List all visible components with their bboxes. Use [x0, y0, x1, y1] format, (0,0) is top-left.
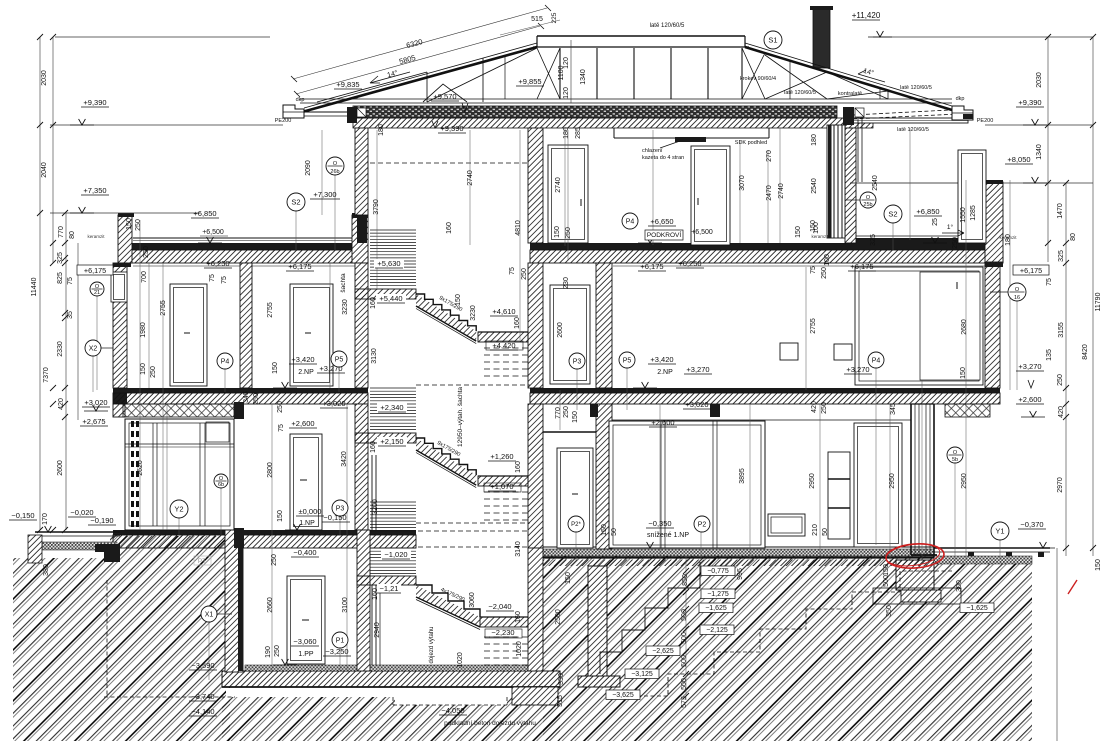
svg-text:850: 850	[682, 574, 689, 586]
svg-text:250: 250	[274, 645, 281, 657]
svg-text:25: 25	[932, 218, 939, 226]
svg-text:P4: P4	[221, 359, 230, 366]
svg-text:160: 160	[370, 297, 377, 309]
svg-text:180: 180	[1005, 234, 1012, 246]
svg-text:75: 75	[221, 276, 228, 284]
svg-text:250: 250	[150, 366, 157, 378]
svg-text:+7,350: +7,350	[83, 186, 106, 195]
svg-text:500: 500	[681, 609, 688, 621]
svg-text:2600: 2600	[57, 460, 64, 476]
svg-text:S2: S2	[888, 210, 897, 219]
svg-text:šachta: šachta	[340, 273, 347, 293]
svg-text:16: 16	[1014, 295, 1020, 301]
svg-text:2.NP: 2.NP	[298, 369, 314, 376]
svg-text:+3,270: +3,270	[686, 365, 709, 374]
svg-text:2330: 2330	[57, 341, 64, 357]
svg-text:190: 190	[265, 646, 272, 658]
svg-text:+6,250: +6,250	[206, 259, 229, 268]
svg-text:kazeta do 4 stran: kazeta do 4 stran	[642, 155, 684, 161]
svg-text:−3,590: −3,590	[191, 661, 214, 670]
svg-text:+3,420: +3,420	[650, 355, 673, 364]
svg-text:2950: 2950	[961, 473, 968, 489]
svg-text:+6,175: +6,175	[84, 266, 106, 275]
svg-text:500: 500	[681, 632, 688, 644]
svg-text:4810: 4810	[515, 220, 522, 236]
svg-text:575: 575	[681, 696, 688, 708]
svg-text:+4,610: +4,610	[492, 307, 515, 316]
svg-text:3070: 3070	[739, 175, 746, 191]
svg-text:325: 325	[870, 234, 877, 246]
svg-text:−3,060: −3,060	[293, 637, 316, 646]
svg-text:26b: 26b	[330, 169, 339, 175]
svg-text:+3,270: +3,270	[846, 365, 869, 374]
svg-text:3230: 3230	[470, 305, 477, 321]
svg-text:2660: 2660	[267, 597, 274, 613]
svg-text:150: 150	[140, 363, 147, 375]
svg-text:150: 150	[810, 220, 817, 232]
svg-text:+9,390: +9,390	[440, 124, 463, 133]
svg-text:2755: 2755	[267, 302, 274, 318]
svg-text:+3,020: +3,020	[322, 399, 345, 408]
svg-text:170: 170	[42, 513, 49, 525]
svg-text:+2,340: +2,340	[380, 403, 403, 412]
svg-text:−1,275: −1,275	[707, 591, 729, 598]
svg-text:+2,150: +2,150	[380, 437, 403, 446]
svg-text:SDK podhled: SDK podhled	[735, 140, 767, 146]
svg-text:350: 350	[886, 605, 893, 617]
svg-text:80: 80	[69, 231, 76, 239]
svg-text:75: 75	[810, 266, 817, 274]
svg-text:1340: 1340	[1036, 144, 1043, 160]
svg-text:3130: 3130	[371, 348, 378, 364]
svg-text:latě 120/60/5: latě 120/60/5	[897, 127, 929, 133]
svg-text:−2,040: −2,040	[488, 602, 511, 611]
svg-text:250: 250	[277, 401, 284, 413]
svg-text:P3: P3	[336, 506, 345, 513]
svg-text:P1: P1	[336, 638, 345, 645]
svg-text:chlazení: chlazení	[642, 148, 663, 154]
svg-text:2030: 2030	[1036, 72, 1043, 88]
svg-text:1285: 1285	[970, 205, 977, 221]
svg-text:1470: 1470	[1057, 203, 1064, 219]
svg-text:+6,500: +6,500	[691, 229, 713, 236]
svg-text:6b: 6b	[218, 482, 224, 488]
svg-text:250: 250	[135, 219, 142, 231]
svg-text:50: 50	[822, 528, 829, 536]
svg-text:250: 250	[1057, 374, 1064, 386]
svg-text:5b: 5b	[952, 457, 958, 463]
svg-text:1020: 1020	[516, 641, 523, 657]
svg-text:P4: P4	[626, 219, 635, 226]
svg-text:2470: 2470	[766, 185, 773, 201]
svg-text:+9,390: +9,390	[1018, 98, 1041, 107]
svg-text:+11,420: +11,420	[852, 11, 881, 20]
svg-text:500: 500	[681, 678, 688, 690]
svg-text:3420: 3420	[341, 451, 348, 467]
svg-text:−2,625: −2,625	[652, 648, 674, 655]
svg-text:PE200: PE200	[275, 118, 292, 124]
svg-text:75: 75	[278, 424, 285, 432]
svg-text:2.NP: 2.NP	[657, 369, 673, 376]
svg-text:150: 150	[572, 411, 579, 423]
svg-text:2090: 2090	[305, 160, 312, 176]
svg-text:−2,230: −2,230	[491, 628, 514, 637]
svg-text:3790: 3790	[373, 199, 380, 215]
svg-text:dkp: dkp	[956, 96, 965, 102]
svg-text:2740: 2740	[778, 183, 785, 199]
svg-text:270: 270	[766, 150, 773, 162]
svg-text:2755: 2755	[160, 300, 167, 316]
svg-text:2500: 2500	[555, 609, 562, 625]
svg-text:1.NP: 1.NP	[299, 520, 315, 527]
svg-text:150: 150	[601, 524, 608, 536]
svg-text:150: 150	[795, 226, 802, 238]
svg-text:krokev 90/60/4: krokev 90/60/4	[740, 76, 776, 82]
svg-text:325: 325	[57, 252, 64, 264]
svg-text:−0,370: −0,370	[1020, 520, 1043, 529]
svg-text:825: 825	[57, 272, 64, 284]
svg-text:1020: 1020	[457, 652, 464, 668]
svg-text:2540: 2540	[872, 175, 879, 191]
svg-text:PT: PT	[198, 558, 206, 565]
svg-text:1550: 1550	[960, 207, 967, 223]
svg-text:2950: 2950	[889, 473, 896, 489]
svg-text:25b: 25b	[863, 202, 872, 208]
svg-text:−0,400: −0,400	[293, 548, 316, 557]
svg-text:11790: 11790	[1095, 292, 1102, 311]
svg-text:250: 250	[952, 237, 959, 249]
svg-text:−3,125: −3,125	[631, 671, 653, 678]
svg-text:50: 50	[611, 528, 618, 536]
svg-text:500: 500	[681, 655, 688, 667]
svg-text:+9,570: +9,570	[433, 92, 456, 101]
svg-text:7370: 7370	[43, 367, 50, 383]
svg-text:−0,350: −0,350	[648, 519, 671, 528]
svg-text:X2: X2	[89, 346, 98, 353]
svg-text:S2: S2	[291, 198, 300, 207]
svg-text:2030: 2030	[41, 70, 48, 86]
svg-text:+5,440: +5,440	[379, 294, 402, 303]
svg-text:+6,175: +6,175	[640, 262, 663, 271]
svg-text:250: 250	[563, 406, 570, 418]
svg-text:135: 135	[1046, 349, 1053, 361]
svg-text:150: 150	[565, 572, 572, 584]
svg-text:250: 250	[271, 554, 278, 566]
svg-text:250: 250	[821, 402, 828, 414]
svg-text:150: 150	[1095, 559, 1102, 571]
svg-text:+2,675: +2,675	[82, 417, 105, 426]
svg-text:420: 420	[1058, 406, 1065, 418]
svg-text:345: 345	[243, 391, 250, 403]
svg-text:dojezd výtahu: dojezd výtahu	[429, 626, 435, 663]
svg-text:Y2: Y2	[174, 505, 183, 514]
svg-text:P2: P2	[698, 522, 707, 529]
svg-text:2800: 2800	[267, 462, 274, 478]
svg-text:+3,020: +3,020	[685, 400, 708, 409]
svg-text:75: 75	[1046, 278, 1053, 286]
svg-text:325: 325	[1058, 250, 1065, 262]
svg-text:515: 515	[531, 16, 543, 23]
svg-text:770: 770	[58, 226, 65, 238]
svg-text:+9,835: +9,835	[336, 80, 359, 89]
svg-text:3230: 3230	[342, 299, 349, 315]
svg-text:+1,070: +1,070	[490, 482, 513, 491]
svg-text:+6,175: +6,175	[1020, 266, 1042, 275]
svg-text:770: 770	[555, 407, 562, 419]
svg-text:kontralatě: kontralatě	[838, 91, 862, 97]
svg-text:160: 160	[372, 588, 379, 600]
svg-text:380: 380	[43, 564, 50, 576]
svg-text:X1: X1	[205, 612, 214, 619]
svg-text:+6,175: +6,175	[850, 262, 873, 271]
svg-text:−2,125: −2,125	[706, 627, 728, 634]
svg-text:+9,390: +9,390	[83, 98, 106, 107]
svg-text:latě 120/60/5: latě 120/60/5	[784, 90, 816, 96]
svg-text:+5,630: +5,630	[377, 259, 400, 268]
svg-text:+3,020: +3,020	[84, 398, 107, 407]
svg-text:160: 160	[514, 317, 521, 329]
svg-text:P5: P5	[623, 358, 632, 365]
svg-text:+3,270: +3,270	[1018, 362, 1041, 371]
svg-text:Y1: Y1	[995, 527, 1004, 536]
svg-text:345: 345	[890, 403, 897, 415]
svg-text:+2,600: +2,600	[1018, 395, 1041, 404]
svg-text:PE200: PE200	[977, 118, 994, 124]
svg-text:+6,175: +6,175	[288, 262, 311, 271]
svg-text:−0,150: −0,150	[11, 511, 34, 520]
svg-text:latě 120/60/5: latě 120/60/5	[650, 23, 685, 29]
svg-text:180: 180	[811, 134, 818, 146]
svg-text:snížené 1.NP: snížené 1.NP	[647, 532, 689, 539]
svg-text:+6,650: +6,650	[650, 217, 673, 226]
svg-text:+6,850: +6,850	[193, 209, 216, 218]
svg-text:160: 160	[515, 461, 522, 473]
svg-text:3200: 3200	[372, 499, 379, 515]
svg-text:−3,625: −3,625	[612, 692, 634, 699]
svg-text:3140: 3140	[515, 541, 522, 557]
svg-text:2540: 2540	[811, 178, 818, 194]
svg-text:700: 700	[141, 271, 148, 283]
svg-text:+1,260: +1,260	[490, 452, 513, 461]
svg-text:35: 35	[67, 311, 74, 319]
svg-text:PODKROVÍ: PODKROVÍ	[647, 230, 682, 239]
svg-text:+4,420: +4,420	[492, 341, 515, 350]
svg-text:2740: 2740	[467, 170, 474, 186]
svg-text:300: 300	[956, 580, 963, 592]
svg-text:21: 21	[94, 290, 100, 296]
svg-text:2970: 2970	[1057, 477, 1064, 493]
svg-text:420: 420	[811, 401, 818, 413]
svg-text:+3,420: +3,420	[291, 355, 314, 364]
svg-text:80: 80	[1070, 233, 1077, 241]
svg-text:P2*: P2*	[571, 522, 581, 528]
svg-text:75: 75	[509, 267, 516, 275]
svg-text:+9,855: +9,855	[518, 77, 541, 86]
svg-text:75: 75	[67, 277, 74, 285]
svg-text:150: 150	[554, 226, 561, 238]
svg-text:100: 100	[824, 254, 831, 266]
svg-text:1980: 1980	[140, 322, 147, 338]
svg-text:160: 160	[515, 611, 522, 623]
svg-text:−0,190: −0,190	[90, 516, 113, 525]
svg-text:podkladní beton dojezdu výtahu: podkladní beton dojezdu výtahu	[444, 720, 536, 727]
svg-text:150: 150	[272, 362, 279, 374]
svg-text:2040: 2040	[41, 162, 48, 178]
svg-text:+6,250: +6,250	[678, 259, 701, 268]
svg-text:250: 250	[253, 393, 260, 405]
svg-text:3060: 3060	[469, 592, 476, 608]
svg-text:230: 230	[563, 277, 570, 289]
svg-text:+7,300: +7,300	[313, 190, 336, 199]
svg-text:P5: P5	[335, 357, 344, 364]
svg-text:2740: 2740	[555, 177, 562, 193]
svg-text:350: 350	[558, 673, 565, 685]
svg-text:180: 180	[563, 127, 570, 139]
svg-text:2950: 2950	[809, 473, 816, 489]
svg-text:8420: 8420	[1082, 344, 1089, 360]
svg-text:−1,625: −1,625	[705, 605, 727, 612]
svg-text:250: 250	[143, 246, 150, 258]
svg-text:dkp: dkp	[296, 97, 305, 103]
svg-text:−1,625: −1,625	[966, 605, 988, 612]
svg-text:2755: 2755	[810, 318, 817, 334]
svg-text:12950–výtah. šachta: 12950–výtah. šachta	[457, 387, 464, 447]
svg-text:1°: 1°	[947, 223, 954, 231]
svg-text:3895: 3895	[739, 468, 746, 484]
svg-text:1.PP: 1.PP	[298, 651, 314, 658]
svg-text:160: 160	[370, 441, 377, 453]
svg-text:+6,500: +6,500	[202, 229, 224, 236]
svg-text:−3,740: −3,740	[191, 692, 214, 701]
svg-text:11440: 11440	[31, 277, 38, 296]
svg-text:1340: 1340	[580, 69, 587, 85]
svg-text:latě 120/60/5: latě 120/60/5	[900, 85, 932, 91]
svg-text:3100: 3100	[342, 597, 349, 613]
svg-text:−1,020: −1,020	[384, 550, 407, 559]
svg-text:2680: 2680	[961, 319, 968, 335]
svg-text:250: 250	[521, 268, 528, 280]
svg-text:3155: 3155	[1058, 322, 1065, 338]
svg-text:1100: 1100	[558, 65, 565, 80]
svg-text:keramzit: keramzit	[87, 234, 105, 239]
svg-text:−4,050: −4,050	[441, 706, 464, 715]
svg-text:150: 150	[126, 218, 133, 230]
svg-text:160: 160	[446, 222, 453, 234]
svg-text:−0,775: −0,775	[707, 568, 729, 575]
svg-text:420: 420	[58, 398, 65, 410]
svg-text:−3,250: −3,250	[325, 647, 348, 656]
svg-text:250: 250	[565, 227, 572, 239]
svg-text:150: 150	[960, 367, 967, 379]
svg-text:2940: 2940	[374, 622, 381, 638]
svg-text:−4,140: −4,140	[191, 707, 214, 716]
svg-text:75: 75	[209, 274, 216, 282]
svg-text:+6,850: +6,850	[916, 207, 939, 216]
svg-text:+2,600: +2,600	[291, 419, 314, 428]
svg-text:P3: P3	[573, 359, 582, 366]
svg-text:2600: 2600	[557, 322, 564, 338]
svg-text:250: 250	[821, 267, 828, 279]
svg-text:120: 120	[563, 87, 570, 99]
svg-text:210: 210	[812, 524, 819, 536]
svg-text:S1: S1	[768, 36, 777, 45]
svg-text:±0,000: ±0,000	[299, 507, 322, 516]
svg-text:keramzit: keramzit	[811, 234, 829, 239]
svg-text:515: 515	[557, 695, 564, 707]
svg-text:995: 995	[737, 568, 744, 580]
svg-text:P4: P4	[872, 358, 881, 365]
svg-text:150: 150	[883, 564, 890, 576]
svg-text:+2,600: +2,600	[651, 418, 674, 427]
svg-text:180: 180	[378, 124, 385, 136]
svg-text:150: 150	[277, 510, 284, 522]
svg-text:−1,21: −1,21	[380, 584, 399, 593]
svg-text:+8,050: +8,050	[1007, 155, 1030, 164]
svg-text:285: 285	[575, 127, 582, 139]
svg-text:2620: 2620	[137, 460, 144, 476]
